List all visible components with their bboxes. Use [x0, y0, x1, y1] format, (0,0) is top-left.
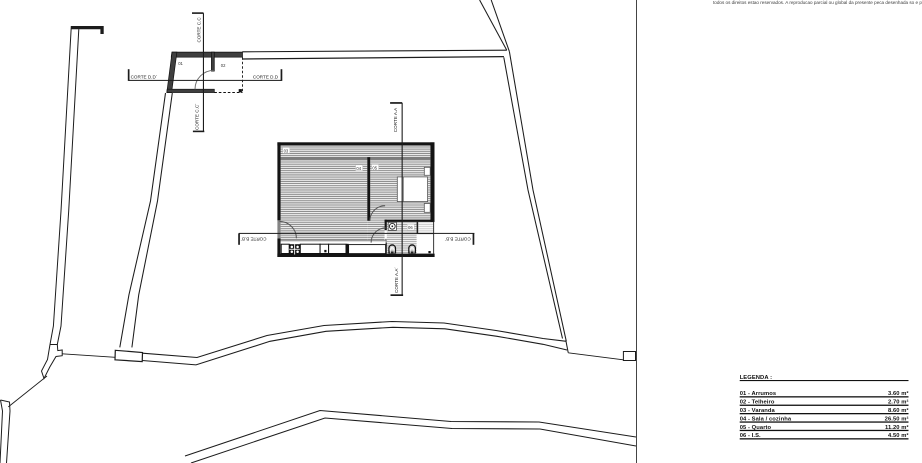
svg-text:01: 01: [178, 61, 183, 66]
svg-text:CORTE B.B´: CORTE B.B´: [444, 236, 471, 241]
svg-text:CORTE A.A´: CORTE A.A´: [394, 267, 399, 293]
svg-text:todos os direitos estao reserv: todos os direitos estao reservados. A re…: [713, 0, 922, 5]
svg-text:3.60 m²: 3.60 m²: [888, 390, 909, 397]
svg-text:06: 06: [408, 225, 413, 230]
svg-text:4.50 m²: 4.50 m²: [888, 432, 909, 439]
svg-text:02: 02: [221, 63, 226, 68]
svg-text:CORTE D.D´: CORTE D.D´: [131, 75, 158, 80]
svg-text:03: 03: [284, 148, 289, 153]
svg-text:26.50 m²: 26.50 m²: [885, 415, 909, 422]
svg-text:CORTE C.C: CORTE C.C: [197, 17, 202, 43]
svg-text:8.60 m²: 8.60 m²: [888, 407, 909, 414]
svg-text:2.70 m²: 2.70 m²: [888, 399, 909, 406]
svg-text:CORTE A.A: CORTE A.A: [393, 107, 398, 132]
svg-text:04: 04: [356, 166, 361, 171]
svg-text:11.20 m²: 11.20 m²: [885, 424, 909, 431]
svg-text:CORTE B.B´: CORTE B.B´: [240, 237, 267, 242]
svg-text:CORTE C.C´: CORTE C.C´: [195, 103, 200, 130]
svg-text:CORTE D.D: CORTE D.D: [253, 75, 279, 80]
svg-text:05: 05: [372, 165, 377, 170]
